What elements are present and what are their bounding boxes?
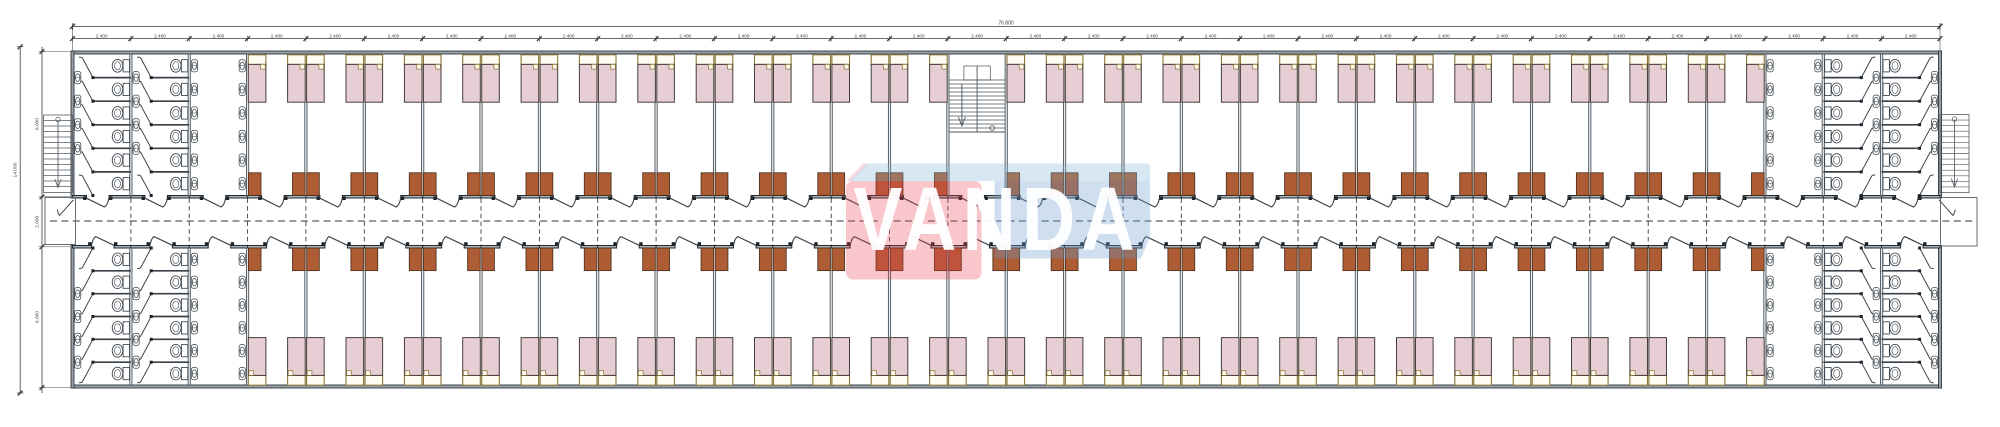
- svg-text:2.400: 2.400: [446, 33, 458, 38]
- svg-text:2.400: 2.400: [855, 33, 867, 38]
- svg-text:VANDA: VANDA: [853, 170, 1141, 270]
- svg-text:2.400: 2.400: [1496, 33, 1508, 38]
- svg-text:2.400: 2.400: [504, 33, 516, 38]
- svg-text:2.400: 2.400: [796, 33, 808, 38]
- svg-text:2.400: 2.400: [1205, 33, 1217, 38]
- svg-text:2.400: 2.400: [621, 33, 633, 38]
- svg-text:2.400: 2.400: [1847, 33, 1859, 38]
- svg-text:6.000: 6.000: [34, 311, 40, 323]
- svg-text:2.400: 2.400: [388, 33, 400, 38]
- svg-text:2.400: 2.400: [96, 33, 108, 38]
- svg-text:2.400: 2.400: [1905, 33, 1917, 38]
- svg-text:2.400: 2.400: [971, 33, 983, 38]
- svg-text:2.400: 2.400: [913, 33, 925, 38]
- svg-text:76.800: 76.800: [998, 21, 1014, 27]
- svg-text:2.400: 2.400: [1613, 33, 1625, 38]
- svg-text:2.400: 2.400: [1672, 33, 1684, 38]
- svg-text:2.400: 2.400: [1380, 33, 1392, 38]
- svg-text:2.400: 2.400: [1263, 33, 1275, 38]
- svg-text:2.400: 2.400: [329, 33, 341, 38]
- svg-text:2.400: 2.400: [271, 33, 283, 38]
- svg-text:2.400: 2.400: [1555, 33, 1567, 38]
- svg-text:2.400: 2.400: [1788, 33, 1800, 38]
- svg-text:2.400: 2.400: [1321, 33, 1333, 38]
- svg-text:6.000: 6.000: [34, 118, 40, 130]
- svg-text:2.400: 2.400: [213, 33, 225, 38]
- svg-text:2.400: 2.400: [563, 33, 575, 38]
- svg-text:2.400: 2.400: [1088, 33, 1100, 38]
- svg-text:2.400: 2.400: [679, 33, 691, 38]
- svg-text:2.400: 2.400: [1146, 33, 1158, 38]
- svg-text:14.000: 14.000: [12, 162, 18, 177]
- svg-text:2.400: 2.400: [738, 33, 750, 38]
- svg-text:2.400: 2.400: [1730, 33, 1742, 38]
- svg-text:2.400: 2.400: [1030, 33, 1042, 38]
- svg-text:2.400: 2.400: [1438, 33, 1450, 38]
- svg-text:2.000: 2.000: [34, 215, 40, 227]
- svg-text:2.400: 2.400: [154, 33, 166, 38]
